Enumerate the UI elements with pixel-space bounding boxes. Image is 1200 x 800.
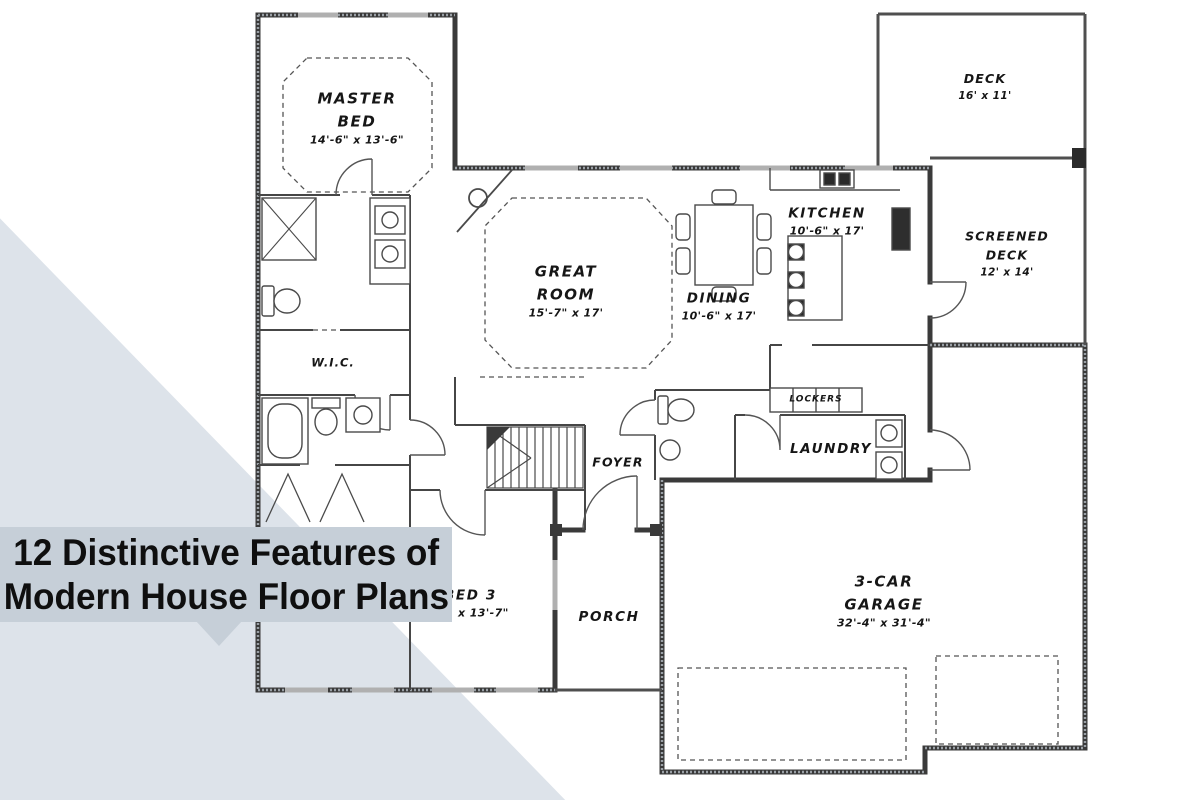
garage-door-2 xyxy=(936,656,1058,744)
kitchen-fixtures xyxy=(770,168,910,320)
title-banner: 12 Distinctive Features of Modern House … xyxy=(0,527,452,622)
room-label-master-bed: MASTER BED 14'-6" x 13'-6" xyxy=(310,87,404,149)
dining-table-icon xyxy=(676,190,771,301)
room-label-lockers: LOCKERS xyxy=(789,393,842,407)
room-label-deck: DECK 16' x 11' xyxy=(958,70,1011,105)
toilet-tank xyxy=(658,396,668,424)
title-line-1: 12 Distinctive Features of xyxy=(13,531,439,575)
laundry-appliances xyxy=(876,420,902,479)
page: MASTER BED 14'-6" x 13'-6" GREAT ROOM 15… xyxy=(0,0,1200,800)
room-label-bed3: BED 3 x 13'-7" xyxy=(444,586,509,623)
garage-door-1 xyxy=(678,668,906,760)
room-label-foyer: FOYER xyxy=(592,454,643,473)
closet-bifold-doors xyxy=(266,474,364,522)
toilet-tank xyxy=(262,286,274,316)
room-label-dining: DINING 10'-6" x 17' xyxy=(682,289,757,326)
powder-room-fixtures xyxy=(658,396,694,460)
fridge-icon xyxy=(892,208,910,250)
toilet-bowl xyxy=(668,399,694,421)
deck-corner-post xyxy=(1072,148,1086,168)
room-label-garage: 3-CAR GARAGE 32'-4" x 31'-4" xyxy=(837,570,931,632)
floor-plan-drawing xyxy=(0,0,1200,800)
bath2-fixtures xyxy=(262,398,380,464)
deck-walls xyxy=(878,14,1085,345)
toilet-bowl xyxy=(315,409,337,435)
island-stools xyxy=(788,244,804,316)
master-bath-fixtures xyxy=(262,198,410,316)
toilet-tank xyxy=(312,398,340,408)
room-label-kitchen: KITCHEN 10'-6" x 17' xyxy=(788,204,866,241)
room-label-wic: W.I.C. xyxy=(311,354,355,371)
stairs-icon xyxy=(487,427,583,488)
toilet-bowl xyxy=(274,289,300,313)
room-label-great-room: GREAT ROOM 15'-7" x 17' xyxy=(529,260,604,322)
corner-pantry xyxy=(457,170,512,232)
title-line-2: Modern House Floor Plans xyxy=(3,575,448,619)
room-label-porch: PORCH xyxy=(579,607,640,627)
room-label-screened-deck: SCREENED DECK 12' x 14' xyxy=(965,227,1049,280)
title-banner-pointer xyxy=(196,621,242,646)
room-label-laundry: LAUNDRY xyxy=(790,439,872,459)
pedestal-sink xyxy=(660,440,680,460)
